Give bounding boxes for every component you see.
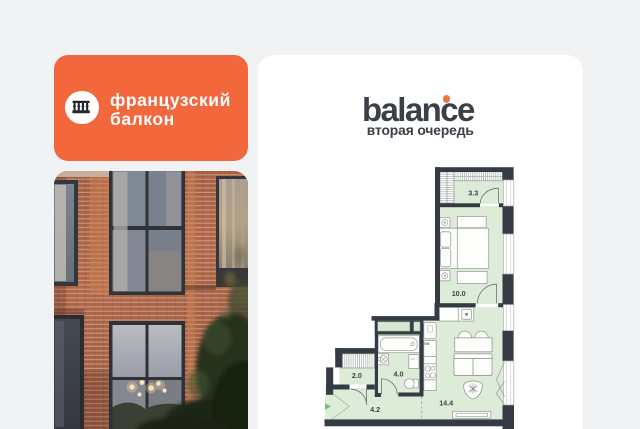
svg-text:пм: пм [424, 341, 429, 346]
svg-text:14.4: 14.4 [439, 398, 453, 407]
svg-text:4.0: 4.0 [394, 370, 404, 379]
svg-text:2.0: 2.0 [352, 371, 362, 380]
svg-text:10.0: 10.0 [452, 289, 466, 298]
svg-text:3.3: 3.3 [468, 189, 478, 198]
svg-text:4.2: 4.2 [370, 405, 380, 414]
